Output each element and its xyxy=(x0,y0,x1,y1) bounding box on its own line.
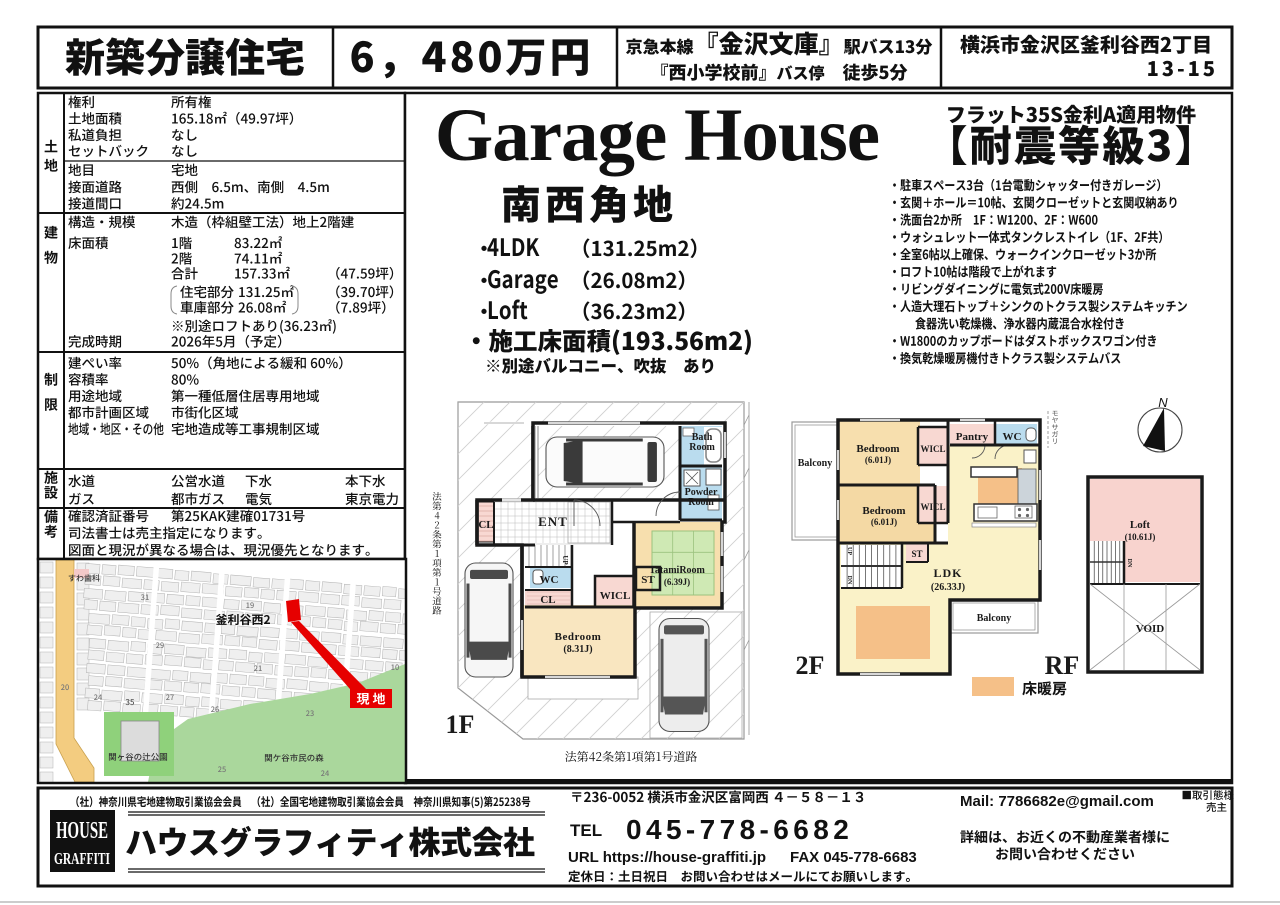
svg-text:UP: UP xyxy=(561,555,569,565)
svg-text:WICL: WICL xyxy=(920,502,945,512)
svg-text:WC: WC xyxy=(540,574,559,586)
svg-text:CL: CL xyxy=(540,594,555,606)
svg-text:DN: DN xyxy=(1126,559,1132,568)
svg-text:Room: Room xyxy=(688,497,714,508)
svg-text:N: N xyxy=(1158,395,1168,410)
svg-text:LDK: LDK xyxy=(933,566,962,580)
svg-text:UP: UP xyxy=(846,547,852,555)
svg-text:(6.01J): (6.01J) xyxy=(865,455,891,465)
svg-text:RF: RF xyxy=(1045,651,1080,680)
svg-text:TatamiRoom: TatamiRoom xyxy=(649,565,705,576)
svg-text:1F: 1F xyxy=(446,710,475,739)
svg-text:Balcony: Balcony xyxy=(798,458,832,469)
svg-text:(26.33J): (26.33J) xyxy=(931,582,965,593)
svg-text:(6.01J): (6.01J) xyxy=(871,517,897,527)
svg-text:Balcony: Balcony xyxy=(977,613,1011,624)
svg-text:2F: 2F xyxy=(796,651,825,680)
svg-text:(8.31J): (8.31J) xyxy=(563,644,592,655)
svg-text:Loft: Loft xyxy=(1130,519,1151,531)
svg-text:Bedroom: Bedroom xyxy=(856,443,899,455)
svg-text:Mail: 7786682e@gmail.com: Mail: 7786682e@gmail.com xyxy=(960,793,1154,810)
svg-text:VOID: VOID xyxy=(1136,623,1165,635)
svg-text:ENT: ENT xyxy=(538,514,568,529)
svg-text:WC: WC xyxy=(1003,431,1022,443)
svg-text:WICL: WICL xyxy=(920,444,945,454)
svg-text:URL https://house-graffiti.jp: URL https://house-graffiti.jp xyxy=(568,849,766,866)
svg-text:(6.39J): (6.39J) xyxy=(664,577,690,587)
svg-text:Garage House: Garage House xyxy=(435,94,879,177)
svg-text:CL: CL xyxy=(478,519,493,531)
svg-text:FAX 045-778-6683: FAX 045-778-6683 xyxy=(790,849,917,866)
svg-text:Bedroom: Bedroom xyxy=(555,631,602,643)
svg-text:ST: ST xyxy=(911,549,922,559)
svg-text:WICL: WICL xyxy=(600,590,631,602)
svg-text:Pantry: Pantry xyxy=(956,431,989,443)
svg-text:DN: DN xyxy=(846,576,852,585)
svg-text:Room: Room xyxy=(689,442,715,453)
svg-text:Bedroom: Bedroom xyxy=(862,505,905,517)
svg-text:045-778-6682: 045-778-6682 xyxy=(626,814,853,845)
svg-text:HOUSE: HOUSE xyxy=(56,818,108,844)
svg-text:TEL: TEL xyxy=(570,821,602,840)
svg-text:GRAFFITI: GRAFFITI xyxy=(54,849,110,868)
svg-text:(10.61J): (10.61J) xyxy=(1125,532,1156,542)
